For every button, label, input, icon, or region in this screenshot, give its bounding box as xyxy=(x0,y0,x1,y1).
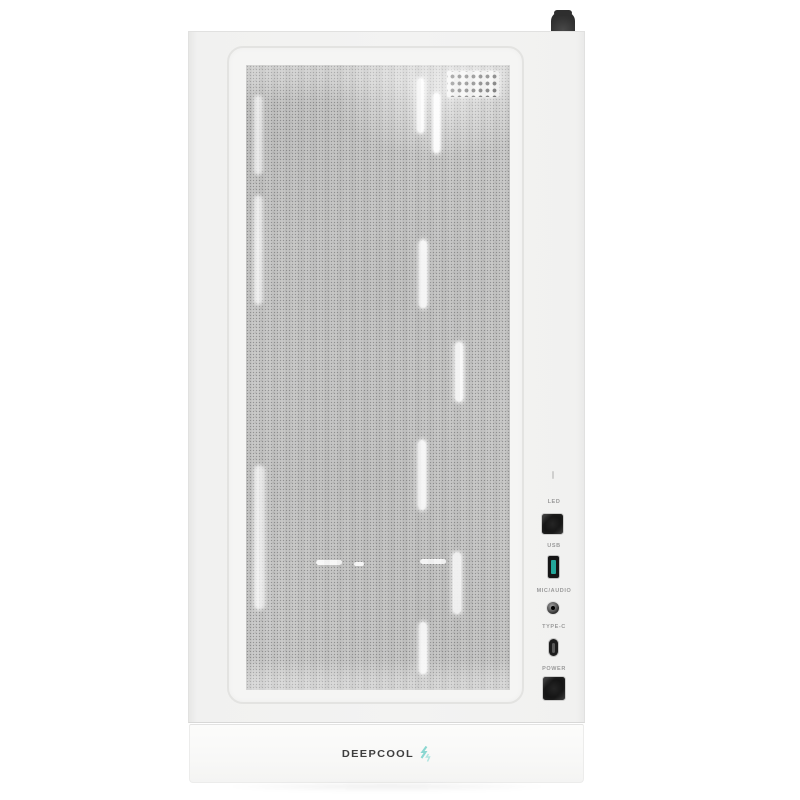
reflection-dash xyxy=(420,559,446,564)
reflection-streak xyxy=(254,95,263,175)
mesh-panel xyxy=(246,65,510,690)
audio-jack xyxy=(547,602,559,614)
led-label: LED xyxy=(524,499,584,505)
mesh-reflection-grid xyxy=(447,71,499,97)
reflection-pill xyxy=(419,622,427,674)
mic-audio-label: MIC/AUDIO xyxy=(524,588,584,594)
reflection-pill xyxy=(419,240,427,308)
reflection-pill xyxy=(453,552,461,614)
panel-marker-icon xyxy=(552,471,554,479)
mesh-frame xyxy=(227,46,524,704)
reflection-pill xyxy=(433,93,440,153)
usb-label: USB xyxy=(524,543,584,549)
reflection-pill xyxy=(418,440,426,510)
case-shadow xyxy=(196,784,578,793)
usb-port-tongue xyxy=(551,560,556,574)
led-button xyxy=(542,514,563,534)
brand-wordmark: DEEPCOOL xyxy=(342,748,414,759)
front-bottom-band: DEEPCOOL xyxy=(189,724,584,783)
usb-a-port xyxy=(548,556,559,578)
power-button xyxy=(543,677,565,700)
product-photo: LED USB MIC/AUDIO TYPE-C POWER DEEPCOOL xyxy=(0,0,800,800)
reflection-streak xyxy=(254,465,265,610)
reflection-dash xyxy=(354,562,364,566)
power-label: POWER xyxy=(524,666,584,672)
reflection-pill xyxy=(455,342,463,402)
reflection-dash xyxy=(316,560,342,565)
deepcool-logo-icon xyxy=(418,746,431,762)
case-body xyxy=(188,31,585,723)
reflection-streak xyxy=(254,195,263,305)
reflection-pill xyxy=(417,78,424,133)
type-c-label: TYPE-C xyxy=(524,624,584,630)
usb-c-port xyxy=(549,639,558,656)
brand-logo: DEEPCOOL xyxy=(342,746,431,762)
